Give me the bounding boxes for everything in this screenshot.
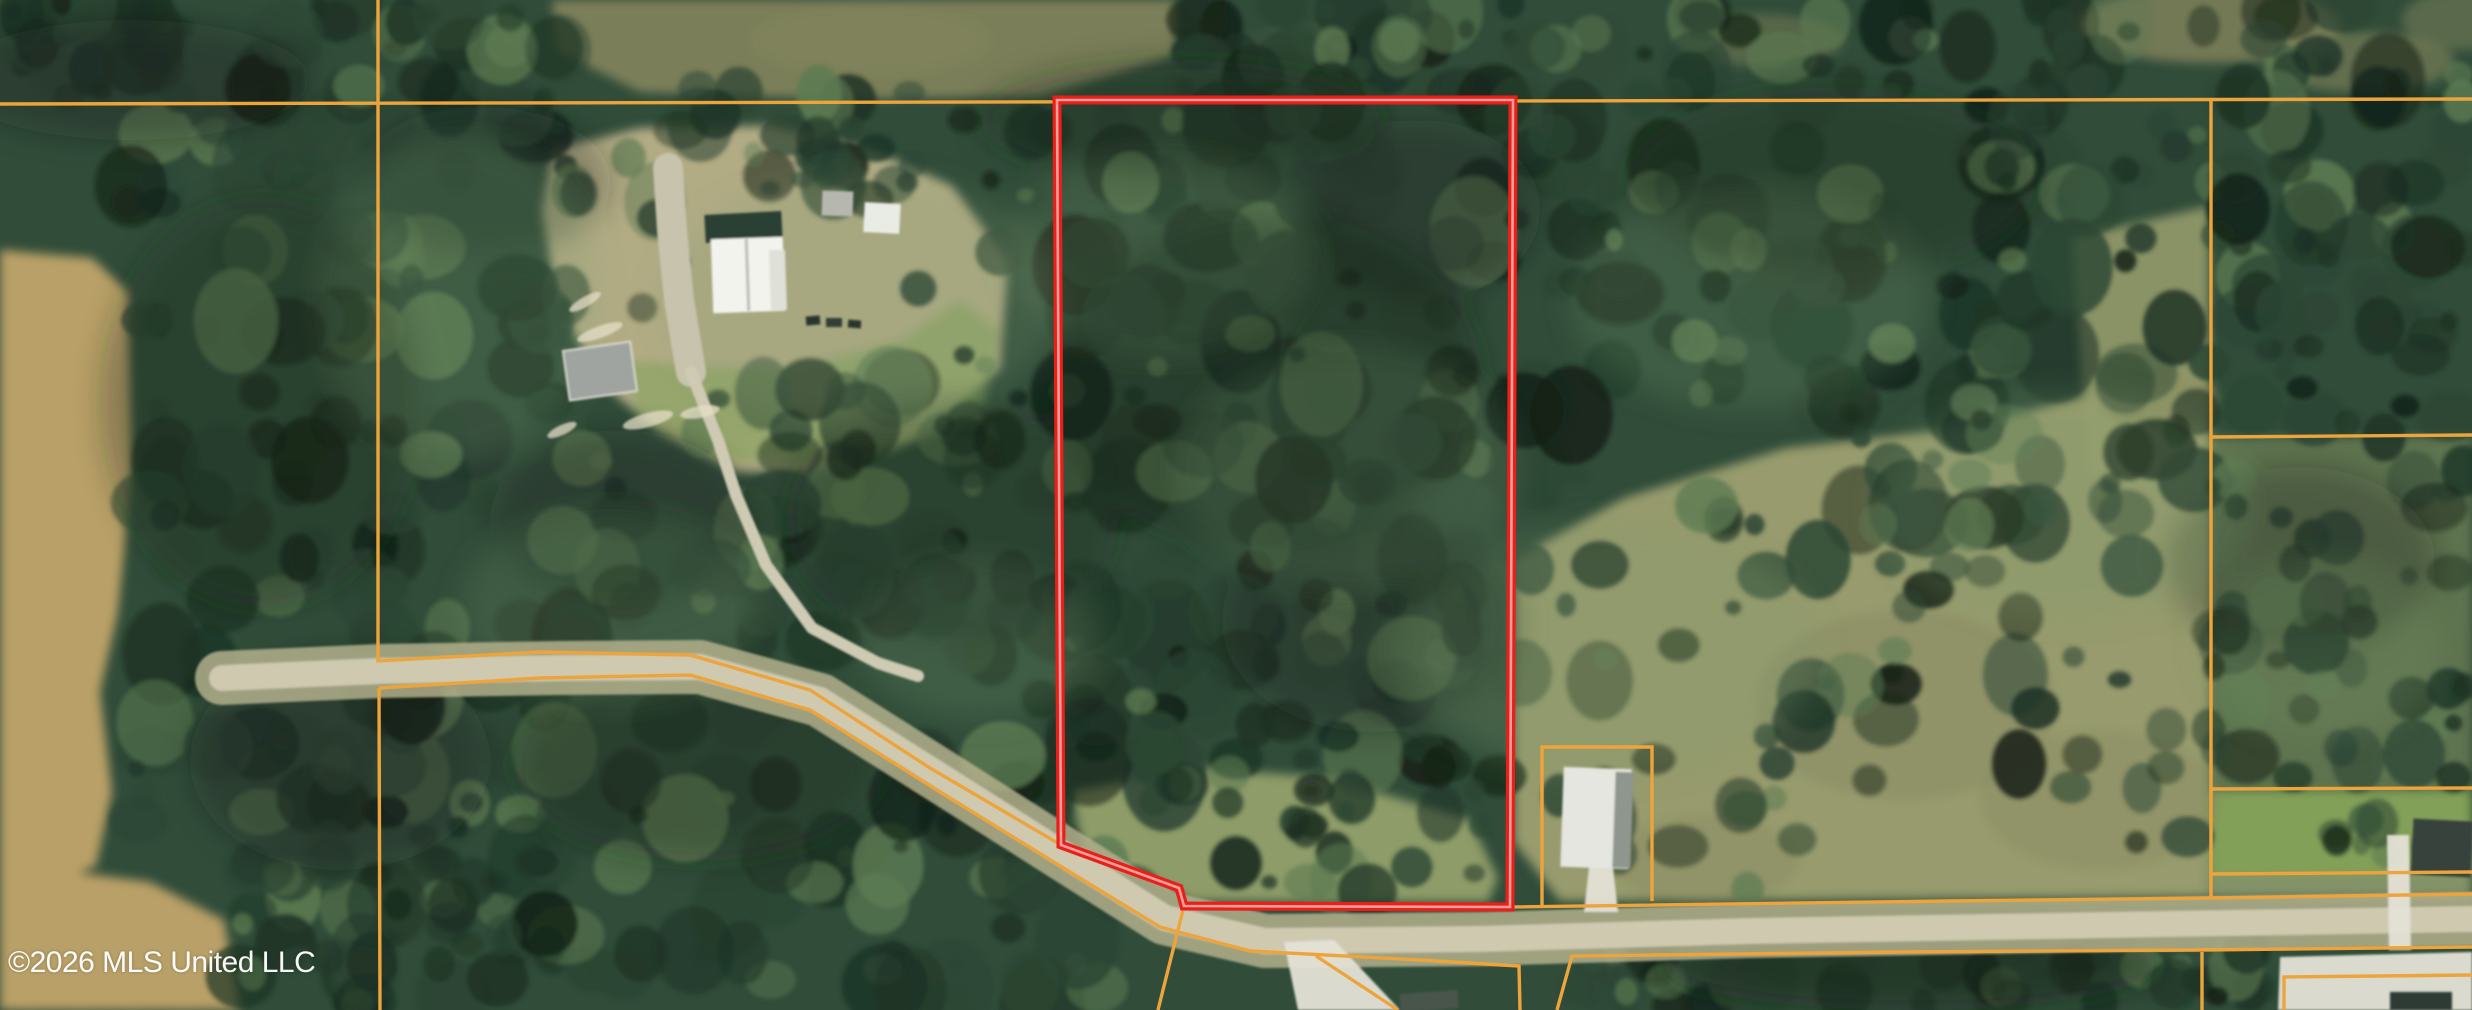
- bottom-right-house-roof: [2390, 992, 2452, 1010]
- barn-east-wing: [769, 250, 787, 311]
- mls-aerial-listing-photo: ©2026 MLS United LLC: [0, 0, 2472, 1010]
- parcel-line-east-branch-lawn-top: [2211, 788, 2472, 789]
- shed-white: [863, 202, 901, 234]
- vehicle-3: [848, 319, 862, 328]
- shed-gray: [822, 190, 854, 216]
- parcel-line-west-boundary-south-of-road: [379, 688, 380, 1010]
- aerial-parcel-map: [0, 0, 2472, 1010]
- parcel-line-east-branch-upper: [2211, 435, 2472, 437]
- neighbor-barn-shadow: [1612, 772, 1633, 869]
- vehicle-2: [826, 318, 842, 327]
- equipment-pad: [563, 342, 637, 401]
- mls-watermark: ©2026 MLS United LLC: [8, 946, 315, 980]
- right-edge-house-roof: [2411, 818, 2472, 877]
- parcel-line-east-branch-lawn-bottom: [2211, 872, 2472, 874]
- vehicle-1: [806, 315, 821, 325]
